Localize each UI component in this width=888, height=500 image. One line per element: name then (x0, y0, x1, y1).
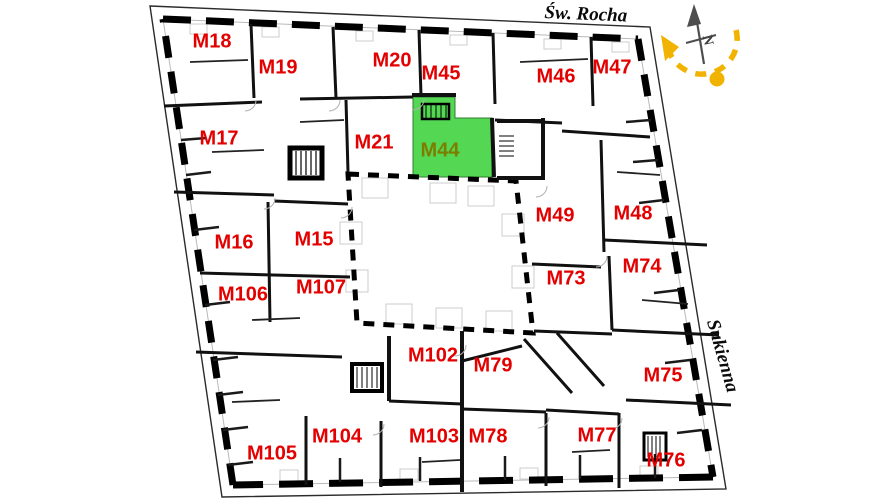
unit-label-M19[interactable]: M19 (259, 57, 298, 80)
unit-label-M102[interactable]: M102 (408, 345, 458, 368)
unit-label-M15[interactable]: M15 (295, 229, 334, 252)
sun-dot (710, 72, 725, 87)
unit-label-M73[interactable]: M73 (547, 268, 586, 291)
unit-label-M107[interactable]: M107 (296, 277, 346, 300)
unit-label-M16[interactable]: M16 (215, 232, 254, 255)
unit-label-M106[interactable]: M106 (218, 284, 268, 307)
unit-label-M48[interactable]: M48 (614, 203, 653, 226)
unit-label-M76[interactable]: M76 (647, 450, 686, 473)
unit-label-M74[interactable]: M74 (623, 256, 662, 279)
street-name-top: Św. Rocha (544, 2, 628, 28)
unit-label-M44[interactable]: M44 (421, 140, 460, 163)
unit-label-M77[interactable]: M77 (578, 425, 617, 448)
unit-label-M105[interactable]: M105 (247, 443, 297, 466)
north-label: N (699, 34, 716, 47)
unit-label-M49[interactable]: M49 (536, 205, 575, 228)
unit-label-M79[interactable]: M79 (474, 355, 513, 378)
unit-label-M45[interactable]: M45 (422, 63, 461, 86)
unit-label-M18[interactable]: M18 (193, 31, 232, 54)
unit-label-M104[interactable]: M104 (312, 426, 362, 449)
unit-label-M20[interactable]: M20 (373, 50, 412, 73)
floor-plan-page: N Św. Rocha Sukienna M18M19M20M45M46M47M… (0, 0, 888, 500)
unit-label-M17[interactable]: M17 (200, 128, 239, 151)
unit-label-M75[interactable]: M75 (644, 365, 683, 388)
unit-label-M103[interactable]: M103 (409, 426, 459, 449)
unit-label-M21[interactable]: M21 (355, 132, 394, 155)
unit-label-M47[interactable]: M47 (593, 57, 632, 80)
unit-label-M78[interactable]: M78 (469, 426, 508, 449)
unit-label-M46[interactable]: M46 (537, 66, 576, 89)
north-arrow-icon: N (686, 4, 716, 64)
